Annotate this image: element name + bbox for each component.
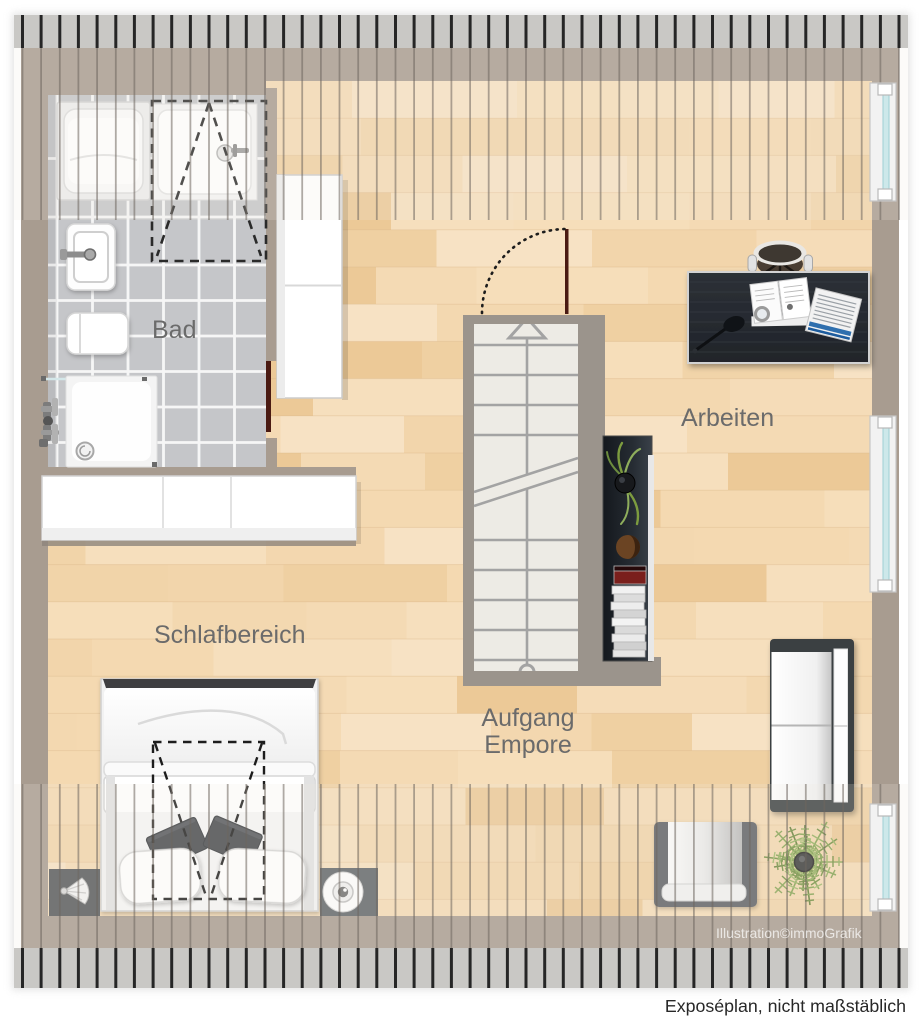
svg-text:Empore: Empore <box>484 731 572 759</box>
svg-text:Schlafbereich: Schlafbereich <box>154 621 305 649</box>
svg-text:Aufgang: Aufgang <box>481 704 574 732</box>
svg-text:Bad: Bad <box>152 316 196 344</box>
svg-text:Exposéplan, nicht maßstäblich: Exposéplan, nicht maßstäblich <box>665 996 906 1016</box>
svg-text:Arbeiten: Arbeiten <box>681 404 774 432</box>
svg-text:Illustration©immoGrafik: Illustration©immoGrafik <box>716 925 863 941</box>
